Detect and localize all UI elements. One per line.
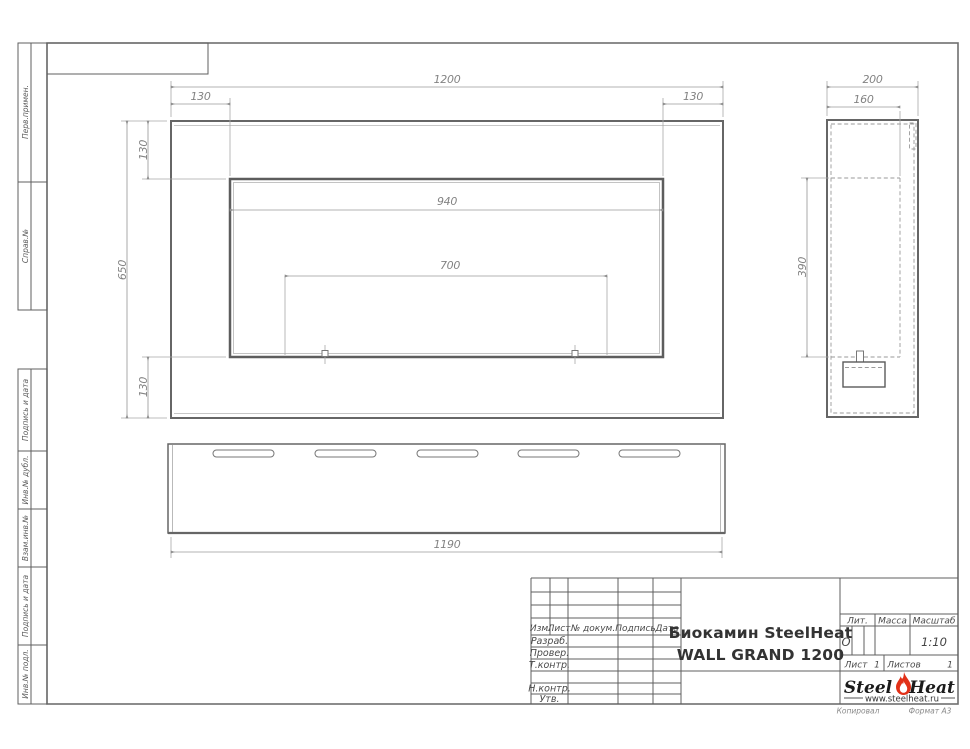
side-burner-box: [843, 351, 885, 387]
stamp-label: Подпись и дата: [21, 575, 30, 638]
tb-header-sign: Подпись: [615, 624, 655, 634]
tb-row-tcontrol: Т.контр.: [529, 660, 570, 671]
side-mount-bracket: [910, 123, 917, 149]
dim-label: 1200: [434, 73, 461, 86]
tb-row-approved: Утв.: [540, 694, 560, 705]
dim-front-margin-top: 130: [137, 121, 226, 179]
product-name-line2: WALL GRAND 1200: [677, 646, 845, 664]
stamp-label: Справ.№: [21, 229, 30, 263]
margin-stamp-box: Справ.№: [18, 182, 47, 310]
dim-front-burner-span: 700: [285, 259, 607, 355]
steelheat-logo: Steel Heat www.steelheat.ru: [844, 672, 955, 705]
side-view: 200 160 390: [796, 73, 918, 417]
dim-label: 130: [683, 90, 703, 103]
tb-scale-value: 1:10: [921, 635, 947, 649]
dim-front-margin-right: 130: [663, 90, 723, 176]
vent-slot: [619, 450, 680, 457]
dim-front-width: 1200: [171, 73, 723, 117]
dim-label: 130: [137, 140, 150, 160]
tb-row-developed: Разраб.: [531, 636, 568, 647]
format-note: Формат А3: [909, 707, 952, 716]
tb-header-list: Лист: [547, 624, 572, 634]
front-view: 1200 130 130 650 130: [116, 73, 723, 418]
dim-label: 1190: [434, 538, 461, 551]
dim-front-margin-bottom: 130: [137, 357, 226, 418]
vent-slot: [417, 450, 478, 457]
bottom-view: 1190: [168, 444, 725, 558]
tb-sheet-label: Лист: [844, 661, 869, 671]
drawing-canvas: Перв.примен. Справ.№ Подпись и дата Инв.…: [0, 0, 970, 749]
stamp-label: Инв.№ подл.: [21, 649, 30, 698]
product-name-line1: Биокамин SteelHeat: [669, 624, 853, 642]
vent-slot: [518, 450, 579, 457]
logo-url: www.steelheat.ru: [865, 695, 939, 705]
tb-mass-label: Масса: [878, 617, 907, 627]
vent-slot: [213, 450, 274, 457]
dim-label: 390: [796, 257, 809, 277]
dim-bottom-width: 1190: [171, 537, 722, 558]
dim-front-height: 650: [116, 121, 167, 418]
margin-stamp-box: Перв.примен.: [18, 43, 47, 182]
drawing-sheet: Перв.примен. Справ.№ Подпись и дата Инв.…: [0, 0, 970, 749]
dim-front-opening-width: 940: [230, 195, 663, 210]
margin-stamp-box: Подпись и дата: [18, 567, 47, 645]
vent-slot: [315, 450, 376, 457]
dim-label: 200: [862, 73, 882, 86]
dim-side-opening-height: 390: [796, 178, 829, 357]
margin-stamp-box: Взам.инв.№: [18, 509, 47, 567]
burner-mark-left: [322, 345, 328, 364]
tb-lit-label: Лит.: [846, 617, 868, 627]
dim-label: 130: [190, 90, 210, 103]
dim-label: 700: [440, 259, 460, 272]
footer-notes: Копировал Формат А3: [837, 707, 952, 716]
dim-label: 940: [437, 195, 457, 208]
dim-front-margin-left: 130: [171, 90, 230, 176]
dim-label: 130: [137, 377, 150, 397]
stamp-label: Взам.инв.№: [21, 515, 30, 561]
margin-stamp-box: Инв.№ дубл.: [18, 451, 47, 509]
tb-row-ncontrol: Н.контр.: [528, 684, 571, 695]
stamp-label: Перв.примен.: [21, 85, 30, 139]
tb-row-checked: Провер.: [530, 648, 569, 659]
margin-stamp-box: Подпись и дата: [18, 369, 47, 451]
sheet-frame: [47, 43, 958, 704]
dim-label: 160: [853, 93, 873, 106]
tb-sheets-label: Листов: [886, 661, 921, 671]
burner-mark-right: [572, 345, 578, 364]
tb-scale-label: Масштаб: [913, 617, 956, 627]
tb-sheets-value: 1: [947, 661, 953, 671]
stamp-label: Инв.№ дубл.: [21, 456, 30, 505]
title-block: Изм. Лист № докум. Подпись Дата Разраб. …: [528, 578, 958, 705]
dim-label: 650: [116, 260, 129, 280]
tb-lit-value: О: [841, 635, 850, 649]
flame-icon: [896, 672, 911, 695]
stamp-label: Подпись и дата: [21, 379, 30, 442]
tb-sheet-value: 1: [874, 661, 880, 671]
margin-stamp-column: Перв.примен. Справ.№ Подпись и дата Инв.…: [18, 43, 47, 704]
margin-stamp-box: Инв.№ подл.: [18, 645, 47, 704]
copy-note: Копировал: [837, 707, 880, 716]
dim-side-inner-depth: 160: [827, 93, 900, 176]
corner-reference-box: [47, 43, 208, 74]
tb-header-doc: № докум.: [570, 624, 615, 634]
